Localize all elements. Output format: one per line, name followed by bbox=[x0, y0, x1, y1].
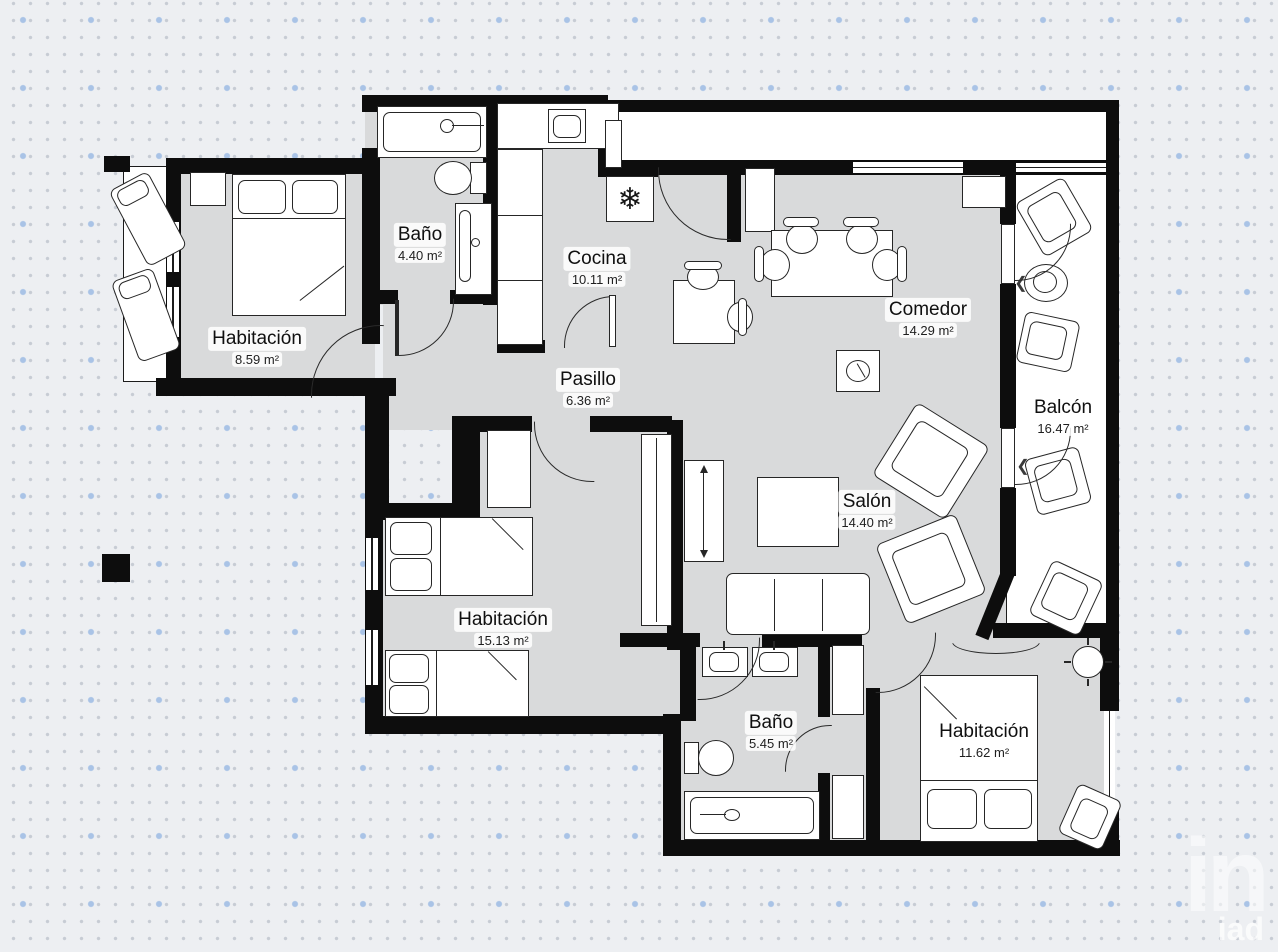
wardrobe-arrow-line bbox=[703, 472, 704, 550]
room-label-balcon: Balcón 16.47 m² bbox=[1030, 396, 1096, 436]
toilet-tank bbox=[470, 162, 487, 194]
wall-cabinet bbox=[962, 176, 1006, 208]
room-label-comedor: Comedor 14.29 m² bbox=[885, 298, 971, 338]
blanket-line bbox=[436, 651, 437, 716]
chair-back bbox=[754, 246, 764, 282]
chair-back bbox=[843, 217, 879, 227]
room-name: Habitación bbox=[208, 327, 306, 351]
room-label-cocina: Cocina 10.11 m² bbox=[563, 247, 630, 287]
watermark-logo: in bbox=[1184, 836, 1264, 917]
window bbox=[366, 538, 378, 590]
pillow bbox=[927, 789, 977, 829]
pillow bbox=[292, 180, 338, 214]
room-area: 14.40 m² bbox=[838, 515, 895, 531]
hall-closet bbox=[832, 775, 864, 839]
wall bbox=[818, 645, 830, 717]
sofa-divider bbox=[822, 579, 823, 631]
nightstand bbox=[190, 172, 226, 206]
room-label-habitacion-1: Habitación 8.59 m² bbox=[208, 327, 306, 367]
toilet-bowl bbox=[434, 161, 472, 195]
chair-back bbox=[684, 261, 722, 270]
wall bbox=[866, 688, 880, 848]
shower-knob bbox=[471, 238, 480, 247]
room-area: 6.36 m² bbox=[563, 393, 613, 409]
room-name: Habitación bbox=[454, 608, 552, 632]
room-area: 10.11 m² bbox=[569, 272, 625, 288]
chair-seat bbox=[786, 224, 818, 254]
light-tick bbox=[1087, 638, 1089, 645]
room-area: 5.45 m² bbox=[746, 736, 796, 752]
pillow bbox=[389, 685, 429, 714]
window bbox=[1104, 711, 1115, 805]
blanket-line bbox=[921, 780, 1037, 781]
room-label-pasillo: Pasillo 6.36 m² bbox=[556, 368, 620, 408]
window bbox=[853, 162, 963, 173]
wall bbox=[365, 393, 389, 520]
armchair-cushion bbox=[1024, 320, 1068, 361]
armchair-cushion bbox=[889, 419, 971, 500]
room-area: 4.40 m² bbox=[395, 248, 445, 264]
floorplan-canvas: ❄ ❮ ❮ bbox=[0, 0, 1278, 952]
pillow bbox=[390, 522, 432, 555]
lounge-cushion bbox=[117, 273, 153, 301]
room-name: Pasillo bbox=[556, 368, 620, 392]
shower-column bbox=[459, 210, 471, 282]
chair-back bbox=[897, 246, 907, 282]
lounge-cushion bbox=[115, 178, 152, 209]
ceiling-light bbox=[1072, 646, 1104, 678]
wall bbox=[1000, 284, 1016, 428]
wall bbox=[993, 623, 1109, 638]
kitchen-counter-left bbox=[497, 149, 543, 345]
light-tick bbox=[1087, 679, 1089, 686]
wall-stub bbox=[104, 156, 130, 172]
wall-stub bbox=[102, 554, 130, 582]
vanity-basin bbox=[759, 652, 789, 672]
wall bbox=[590, 416, 672, 432]
room-name: Balcón bbox=[1030, 396, 1096, 420]
toilet-bowl bbox=[698, 740, 734, 776]
tap-line bbox=[773, 641, 775, 650]
wall bbox=[663, 840, 1120, 856]
sofa-divider bbox=[774, 579, 775, 631]
wall bbox=[452, 418, 480, 520]
wall bbox=[680, 633, 696, 721]
counter-divider bbox=[498, 280, 542, 281]
room-label-habitacion-3: Habitación 11.62 m² bbox=[935, 720, 1033, 760]
room-area: 15.13 m² bbox=[474, 633, 531, 649]
door-leaf-entrada bbox=[605, 120, 622, 168]
room-name: Salón bbox=[839, 490, 896, 514]
sofa bbox=[726, 573, 870, 635]
wall bbox=[362, 290, 398, 304]
bathtub-basin bbox=[690, 797, 814, 834]
watermark-text: iad bbox=[1218, 911, 1264, 948]
armchair-cushion bbox=[1039, 570, 1090, 622]
light-tick bbox=[1105, 661, 1112, 663]
pillow bbox=[238, 180, 286, 214]
chair-back bbox=[738, 298, 747, 336]
counter-divider bbox=[498, 215, 542, 216]
wall bbox=[1106, 100, 1119, 632]
closet bbox=[487, 430, 531, 508]
pillow bbox=[984, 789, 1032, 829]
faucet-line bbox=[452, 125, 484, 126]
room-area: 14.29 m² bbox=[899, 323, 956, 339]
room-name: Baño bbox=[394, 223, 446, 247]
watermark: in iad bbox=[1184, 836, 1264, 948]
toilet-tank bbox=[684, 742, 699, 774]
snowflake-icon: ❄ bbox=[606, 176, 654, 222]
sideboard bbox=[745, 168, 775, 232]
arrow-up bbox=[700, 465, 708, 473]
room-area: 16.47 m² bbox=[1034, 421, 1091, 437]
wardrobe-line bbox=[656, 438, 657, 622]
arrow-down bbox=[700, 550, 708, 558]
pillow bbox=[389, 654, 429, 683]
door-leaf-balcon-2 bbox=[1001, 428, 1015, 488]
wall bbox=[604, 100, 1110, 112]
chair-seat bbox=[846, 224, 878, 254]
wall bbox=[1000, 488, 1016, 576]
hall-closet bbox=[832, 645, 864, 715]
room-name: Habitación bbox=[935, 720, 1033, 744]
room-area: 11.62 m² bbox=[956, 745, 1012, 761]
chair-back bbox=[783, 217, 819, 227]
room-label-bano-1: Baño 4.40 m² bbox=[394, 223, 446, 263]
window bbox=[366, 630, 378, 685]
room-label-salon: Salón 14.40 m² bbox=[838, 490, 895, 530]
faucet-line bbox=[700, 814, 726, 815]
outside-strip-top bbox=[610, 112, 1108, 162]
blanket-line bbox=[440, 518, 441, 595]
wall bbox=[362, 148, 380, 344]
outdoor-armchair bbox=[1015, 311, 1081, 374]
window bbox=[1016, 163, 1106, 172]
room-name: Cocina bbox=[563, 247, 630, 271]
kitchen-sink-basin bbox=[553, 115, 581, 138]
wall bbox=[663, 714, 681, 856]
wall bbox=[166, 158, 181, 394]
chair-seat bbox=[760, 249, 790, 281]
pillow bbox=[390, 558, 432, 591]
room-label-habitacion-2: Habitación 15.13 m² bbox=[454, 608, 552, 648]
bathtub-basin bbox=[383, 112, 481, 152]
bathtub-drain bbox=[724, 809, 740, 821]
room-label-bano-2: Baño 5.45 m² bbox=[745, 711, 797, 751]
chair-cushion bbox=[1068, 796, 1110, 841]
door-leaf-balcon-1 bbox=[1001, 224, 1015, 284]
blanket-line bbox=[233, 218, 345, 219]
armchair-cushion bbox=[890, 531, 967, 607]
room-name: Comedor bbox=[885, 298, 971, 322]
room-name: Baño bbox=[745, 711, 797, 735]
wall bbox=[365, 716, 667, 734]
room-area: 8.59 m² bbox=[232, 352, 282, 368]
light-tick bbox=[1064, 661, 1071, 663]
door-leaf bbox=[609, 295, 616, 347]
coffee-table bbox=[757, 477, 839, 547]
